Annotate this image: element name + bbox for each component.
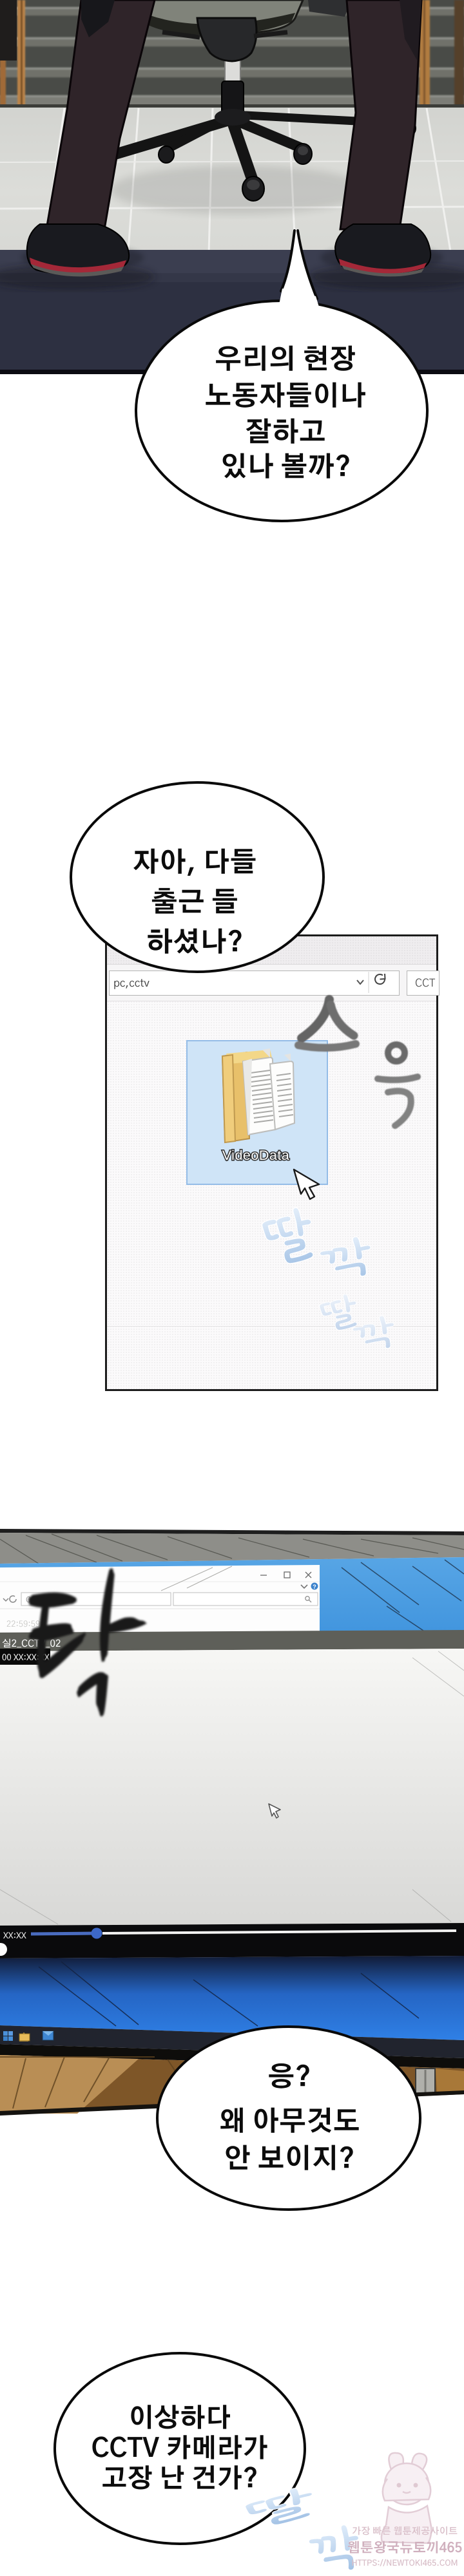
svg-text:VideoData: VideoData	[222, 1148, 290, 1163]
svg-text:?: ?	[313, 1584, 316, 1590]
